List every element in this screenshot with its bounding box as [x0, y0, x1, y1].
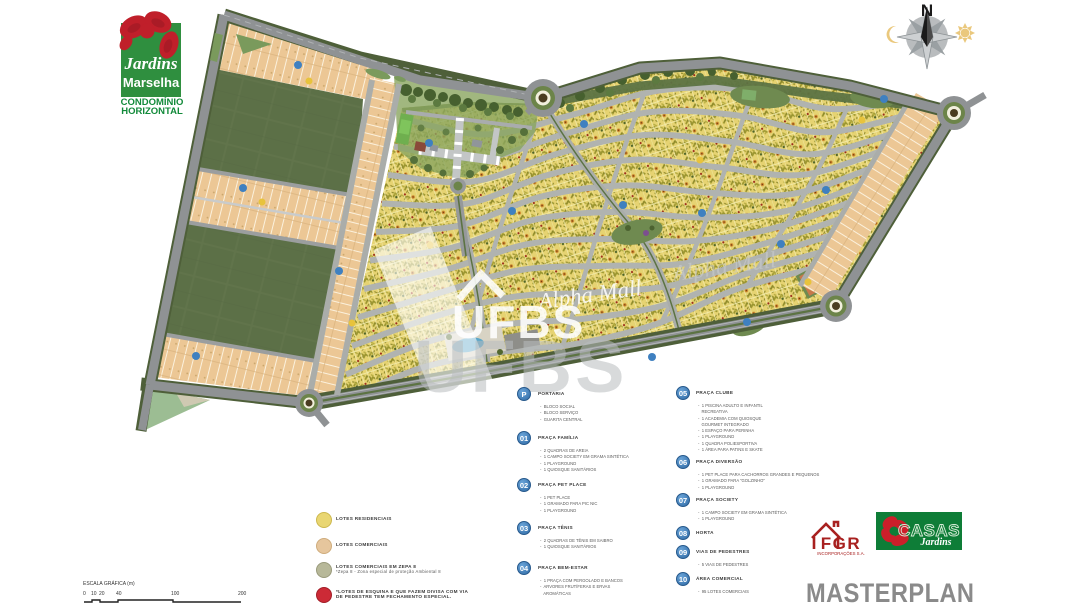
svg-text:200: 200 [238, 591, 247, 597]
svg-text:Jardins: Jardins [124, 54, 178, 73]
svg-text:10: 10 [91, 591, 97, 597]
svg-text:HORIZONTAL: HORIZONTAL [121, 106, 183, 117]
svg-text:40: 40 [116, 591, 122, 597]
svg-text:100: 100 [171, 591, 180, 597]
svg-text:0: 0 [83, 591, 86, 597]
svg-text:INCORPORAÇÕES S.A.: INCORPORAÇÕES S.A. [817, 551, 865, 556]
svg-text:N: N [921, 1, 933, 20]
svg-text:20: 20 [99, 591, 105, 597]
svg-text:Marselha: Marselha [123, 75, 180, 90]
svg-text:Jardins: Jardins [919, 537, 951, 548]
